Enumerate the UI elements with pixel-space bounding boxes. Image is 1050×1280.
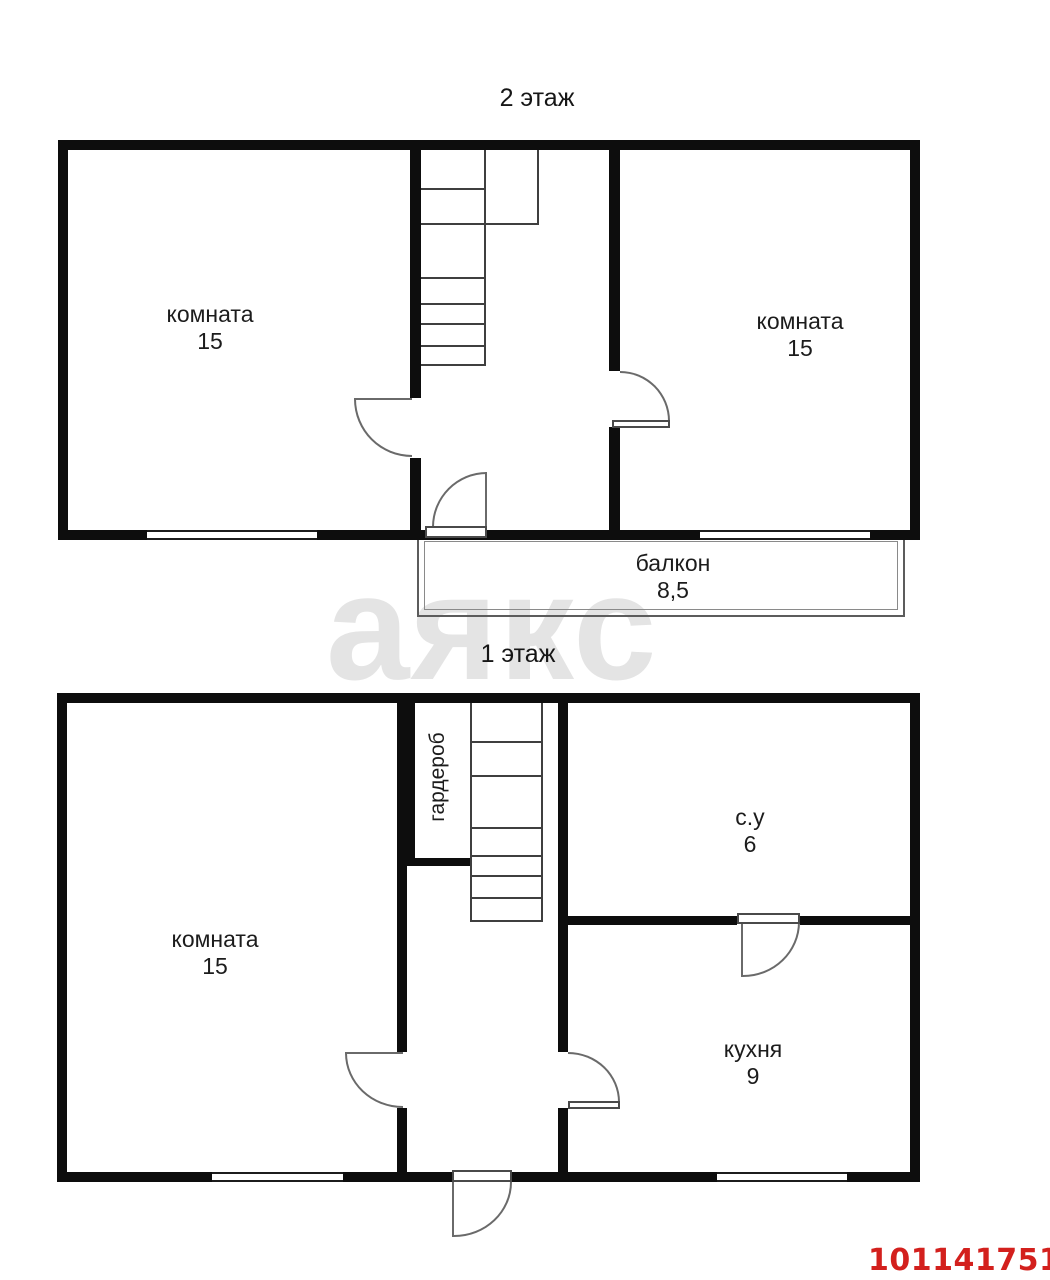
bath-kitchen-divider-right bbox=[800, 916, 910, 925]
listing-id: 1011417510 bbox=[868, 1243, 1032, 1278]
room-area: 8,5 bbox=[573, 577, 773, 604]
room-area: 15 bbox=[110, 328, 310, 355]
stairs-step-line bbox=[470, 875, 543, 877]
room-name: с.у bbox=[735, 804, 764, 830]
stairs-landing-edge bbox=[537, 150, 539, 225]
window bbox=[212, 1172, 343, 1182]
room-name: комната bbox=[167, 301, 254, 327]
stairs-bottom-line bbox=[470, 920, 543, 922]
stairs-step-line bbox=[421, 323, 485, 325]
door-arc bbox=[454, 1182, 512, 1237]
room-label-wardrobe: гардероб bbox=[427, 731, 449, 823]
balcony-label: балкон 8,5 bbox=[573, 550, 773, 604]
room-area: 15 bbox=[700, 335, 900, 362]
floor1-hall-left-wall-upper bbox=[397, 703, 407, 1052]
floor1-hall-left-wall-lower bbox=[397, 1108, 407, 1172]
room-label-floor2-left: комната 15 bbox=[110, 301, 310, 355]
door-leaf bbox=[612, 420, 670, 428]
stairs-step-line bbox=[470, 897, 543, 899]
stairs-bottom-line bbox=[421, 364, 485, 366]
room-name: комната bbox=[757, 308, 844, 334]
stairs-step-line bbox=[470, 775, 543, 777]
room-label-floor2-right: комната 15 bbox=[700, 308, 900, 362]
room-area: 15 bbox=[115, 953, 315, 980]
bath-kitchen-divider-left bbox=[568, 916, 737, 925]
stairs-step-line bbox=[421, 345, 485, 347]
floor1-title: 1 этаж bbox=[418, 640, 618, 669]
stairs-left-edge bbox=[470, 703, 472, 922]
room-name: комната bbox=[172, 926, 259, 952]
window bbox=[147, 530, 317, 540]
stairs-step-line bbox=[470, 741, 543, 743]
floor-plan-page: аякс 2 этаж комната 15 комната 15 балкон… bbox=[0, 0, 1050, 1280]
stairs-step-line bbox=[421, 188, 485, 190]
room-label-floor1-left: комната 15 bbox=[115, 926, 315, 980]
window bbox=[700, 530, 870, 540]
wardrobe-bottom-wall bbox=[407, 858, 470, 866]
stairs-right-edge bbox=[541, 703, 543, 922]
window bbox=[717, 1172, 847, 1182]
floor1-hall-right-wall-lower bbox=[558, 1108, 568, 1172]
wardrobe-left-wall bbox=[407, 703, 415, 858]
room-label-bathroom: с.у 6 bbox=[650, 804, 850, 858]
floor2-hall-left-wall-upper bbox=[410, 150, 421, 398]
floor1-hall-right-wall-upper bbox=[558, 703, 568, 1052]
floor2-hall-right-wall-lower bbox=[609, 427, 620, 530]
room-area: 6 bbox=[650, 831, 850, 858]
door-leaf bbox=[568, 1101, 620, 1109]
stairs-step-line bbox=[470, 855, 543, 857]
room-label-kitchen: кухня 9 bbox=[653, 1036, 853, 1090]
entrance-door-threshold bbox=[452, 1170, 512, 1182]
floor2-hall-right-wall-upper bbox=[609, 150, 620, 371]
stairs-step-line bbox=[421, 277, 485, 279]
balcony-door-threshold bbox=[425, 526, 487, 538]
room-name: кухня bbox=[724, 1036, 782, 1062]
room-name: балкон bbox=[636, 550, 711, 576]
stairs-step-line bbox=[470, 827, 543, 829]
stairs-landing-line bbox=[421, 223, 538, 225]
stairs-right-edge bbox=[484, 150, 486, 366]
floor2-hall-left-wall-lower bbox=[410, 458, 421, 530]
floor2-title: 2 этаж bbox=[437, 84, 637, 113]
door-threshold bbox=[737, 913, 800, 924]
room-area: 9 bbox=[653, 1063, 853, 1090]
stairs-step-line bbox=[421, 303, 485, 305]
